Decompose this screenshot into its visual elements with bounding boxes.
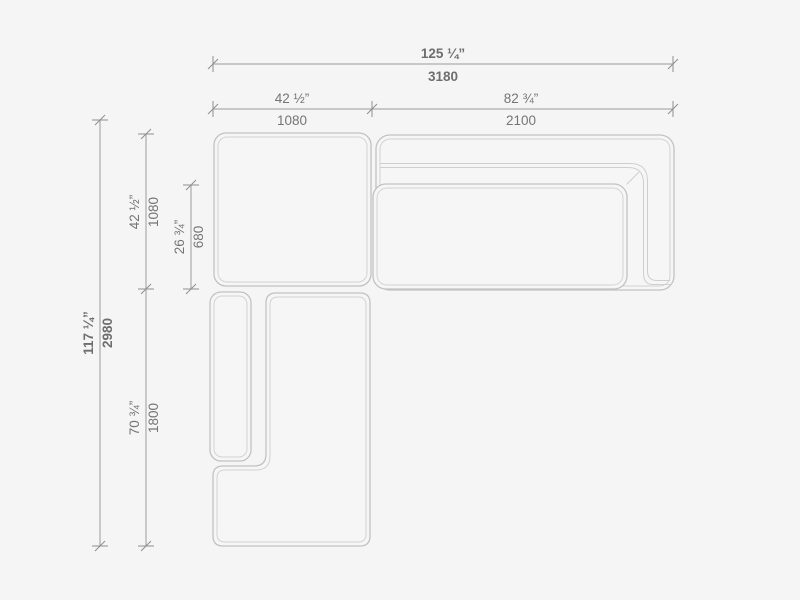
dim-bottom-depth-mm: 1800 [146,403,161,433]
dim-left-width-mm: 1080 [277,113,307,128]
bottom-chaise-module [210,292,370,546]
dimensions: 125 ¼” 3180 42 ½” 1080 82 ¾” 2100 117 ¼”… [81,46,678,551]
chaise-backrest-strip [210,292,251,461]
right-seat-cushion [373,184,627,289]
dim-section-widths: 42 ½” 1080 82 ¾” 2100 [208,91,678,128]
dim-bottom-depth-inches: 70 ¾” [127,401,142,436]
dim-left-width-inches: 42 ½” [275,91,310,106]
dim-seat-depth-inches: 26 ¾” [172,220,187,255]
dim-bottom-depth: 70 ¾” 1800 [127,289,161,551]
dim-seat-depth-mm: 680 [191,226,206,249]
dim-overall-width: 125 ¼” 3180 [208,46,678,84]
drawing-canvas: 125 ¼” 3180 42 ½” 1080 82 ¾” 2100 117 ¼”… [0,0,800,600]
dim-overall-width-inches: 125 ¼” [421,46,465,61]
dim-top-depth: 42 ½” 1080 [127,129,161,294]
dim-overall-depth: 117 ¼” 2980 [81,115,115,551]
dim-top-depth-inches: 42 ½” [127,195,142,230]
corner-module-outline [214,133,371,286]
sofa-plan-svg: 125 ¼” 3180 42 ½” 1080 82 ¾” 2100 117 ¼”… [0,0,800,600]
dim-overall-width-mm: 3180 [428,69,458,84]
dim-right-width-mm: 2100 [506,113,536,128]
dim-seat-depth: 26 ¾” 680 [172,180,206,294]
dim-right-width-inches: 82 ¾” [504,91,539,106]
dim-overall-depth-mm: 2980 [100,318,115,348]
right-sofa-module [373,135,674,290]
dim-overall-depth-inches: 117 ¼” [81,311,96,355]
sofa-plan [210,133,674,546]
dim-top-depth-mm: 1080 [146,197,161,227]
corner-module [214,133,371,286]
